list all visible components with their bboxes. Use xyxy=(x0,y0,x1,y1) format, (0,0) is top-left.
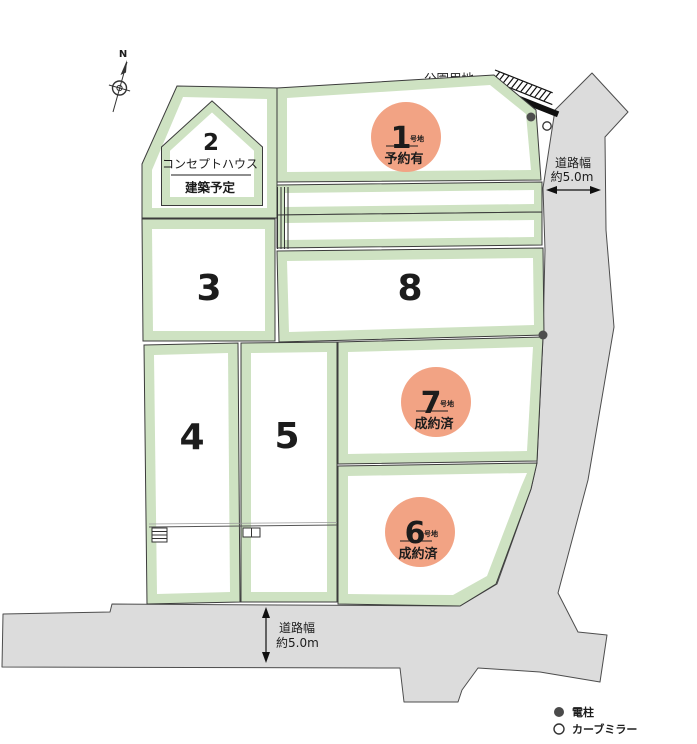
site-plan-drawing: 公園用地 2 コンセプトハウス 建築予定 8 3 xyxy=(0,0,697,744)
lot-6-badge-status: 成約済 xyxy=(398,546,438,562)
legend-curve-mirror-label: カーブミラー xyxy=(572,722,637,736)
utility-pole-dot-top xyxy=(527,113,536,122)
road-width-right-label: 道路幅 xyxy=(555,155,591,170)
legend-utility-pole-icon xyxy=(554,707,564,717)
lot-7-badge-number: 7 xyxy=(421,386,442,421)
lot-7-badge-status: 成約済 xyxy=(414,416,454,432)
lot-3-number: 3 xyxy=(196,268,221,309)
compass-icon: N xyxy=(109,49,130,112)
road-width-bottom-label: 道路幅 xyxy=(279,620,315,635)
utility-pole-dot-mid xyxy=(539,331,548,340)
lot-7-badge: 7 号地 成約済 xyxy=(401,367,471,437)
legend-utility-pole-label: 電柱 xyxy=(572,705,594,719)
driveway-strip-upper xyxy=(277,182,542,215)
lot-6-badge: 6 号地 成約済 xyxy=(385,497,455,567)
lot-4: 4 xyxy=(144,343,240,604)
lot-2: 2 コンセプトハウス 建築予定 xyxy=(142,86,277,218)
lot-6-badge-unit: 号地 xyxy=(424,529,438,538)
lot-4-number: 4 xyxy=(179,417,204,458)
stairs-icon-lot5 xyxy=(243,528,260,537)
lot-1-badge-status: 予約有 xyxy=(384,151,423,167)
road-width-right-value: 約5.0m xyxy=(551,169,594,184)
stairs-icon-lot4 xyxy=(152,528,167,542)
lot-1-badge-number: 1 xyxy=(391,121,412,156)
lot-2-title: コンセプトハウス xyxy=(162,157,258,171)
road-width-bottom-value: 約5.0m xyxy=(276,635,319,650)
lot-2-number: 2 xyxy=(203,130,219,156)
lot-1-badge: 1 号地 予約有 xyxy=(371,102,441,172)
lot-5-number: 5 xyxy=(274,416,299,457)
site-plan-page: 公園用地 2 コンセプトハウス 建築予定 8 3 xyxy=(0,0,697,744)
lot-1-badge-unit: 号地 xyxy=(410,134,424,143)
lot-8: 8 xyxy=(277,248,544,342)
compass-north-label: N xyxy=(119,49,127,60)
lot-2-subtitle: 建築予定 xyxy=(185,180,236,195)
lot-3: 3 xyxy=(142,219,275,341)
curve-mirror-dot xyxy=(543,122,551,130)
legend-curve-mirror-icon xyxy=(554,724,564,734)
lot-7-badge-unit: 号地 xyxy=(440,399,454,408)
lot-6-badge-number: 6 xyxy=(405,516,426,551)
lot-8-number: 8 xyxy=(397,268,422,309)
lot-5: 5 xyxy=(241,342,337,602)
driveway-strip-lower xyxy=(277,212,542,248)
legend: 電柱 カーブミラー xyxy=(554,705,637,736)
